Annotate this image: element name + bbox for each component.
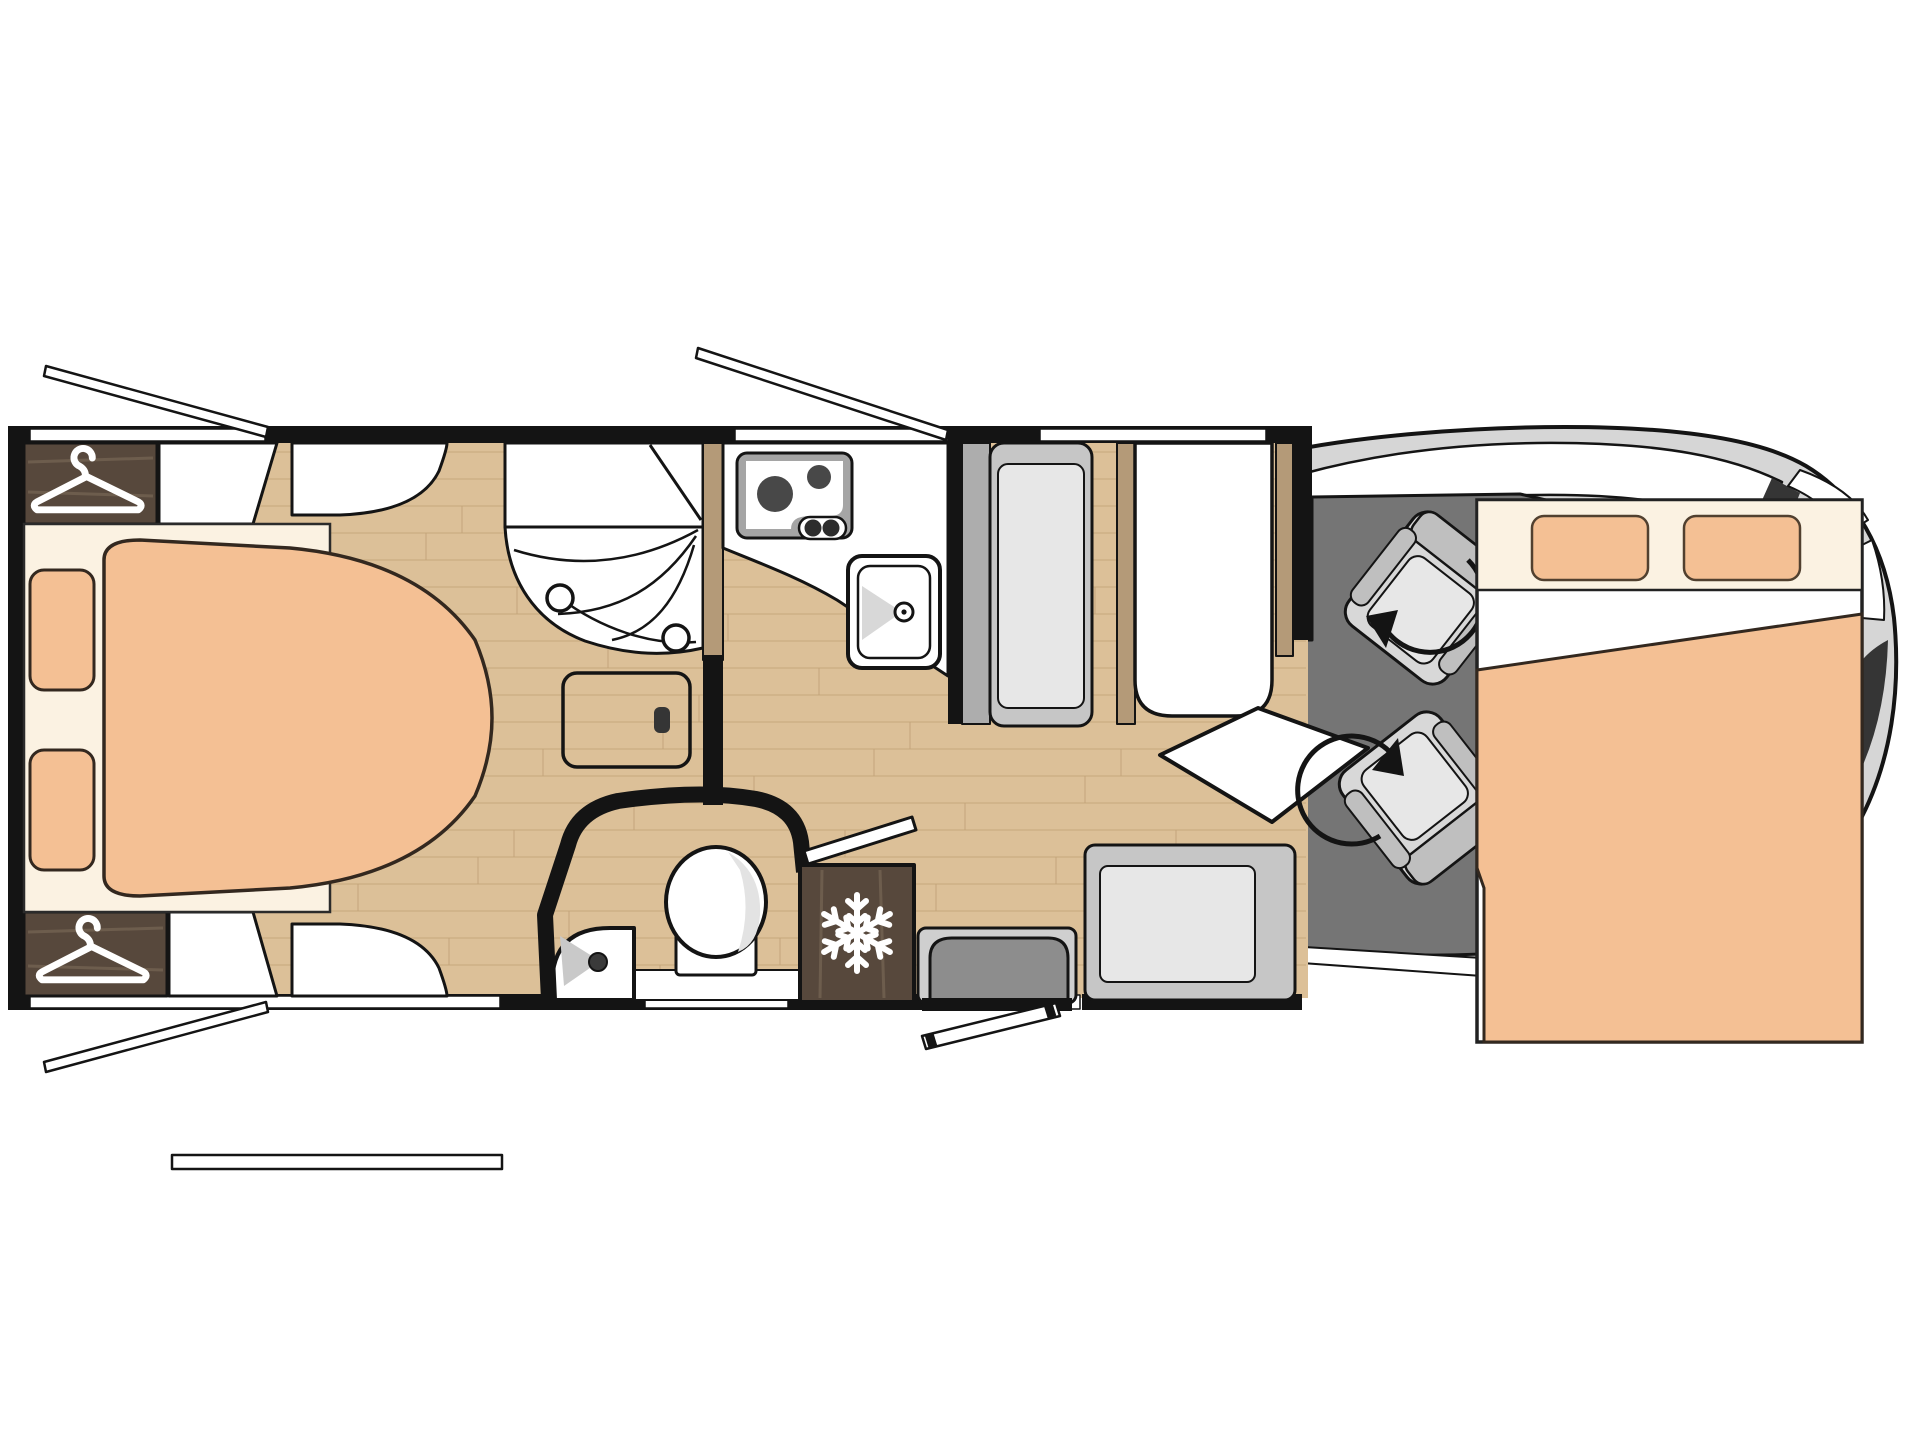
entrance-step (930, 938, 1068, 1003)
motorhome-floorplan (0, 0, 1920, 1440)
wall-front-partition (1294, 426, 1312, 640)
door-end-cap (1048, 1004, 1052, 1017)
shower-cabinet (505, 443, 703, 527)
burner-icon (757, 476, 793, 512)
curtain-ring-icon (663, 625, 689, 651)
bench-cushion (998, 464, 1084, 708)
front-bed-pillow (1684, 516, 1800, 580)
knob-icon (823, 520, 840, 537)
front-bench-cushion (1100, 866, 1255, 982)
floorplan-canvas (0, 0, 1920, 1440)
kitchen-sink (848, 556, 940, 668)
front-bed-mattress (1477, 614, 1862, 1042)
wood-grain-line (820, 870, 822, 998)
hob (737, 453, 852, 539)
shower-partition-wood (703, 443, 723, 660)
rear-bed-pillow (30, 750, 94, 870)
door-end-cap (929, 1034, 933, 1047)
rear-bed-pillow (30, 570, 94, 690)
knob-icon (805, 520, 822, 537)
front-bench (1085, 845, 1295, 1000)
window-bedroom-top (30, 429, 265, 441)
shower-partition-wall (703, 655, 723, 805)
dinette-table (1135, 443, 1272, 716)
front-bed-pillow (1532, 516, 1648, 580)
burner-icon (807, 465, 831, 489)
kitchen-partition-wall (948, 438, 962, 724)
curtain-ring-icon (547, 585, 573, 611)
basin-drain (589, 953, 607, 971)
bench-backrest (962, 443, 990, 724)
side-panel-wood (1117, 443, 1135, 724)
side-panel-wood (1276, 443, 1293, 656)
faucet-dot (901, 609, 906, 614)
window-flap-open-flat (172, 1155, 502, 1169)
front-drop-down-bed (1477, 500, 1862, 1042)
window-lounge (1040, 429, 1266, 441)
hatch-handle (654, 707, 670, 733)
corner-washbasin (552, 928, 634, 1000)
wall-rear (8, 426, 24, 1010)
fridge (800, 865, 914, 1002)
